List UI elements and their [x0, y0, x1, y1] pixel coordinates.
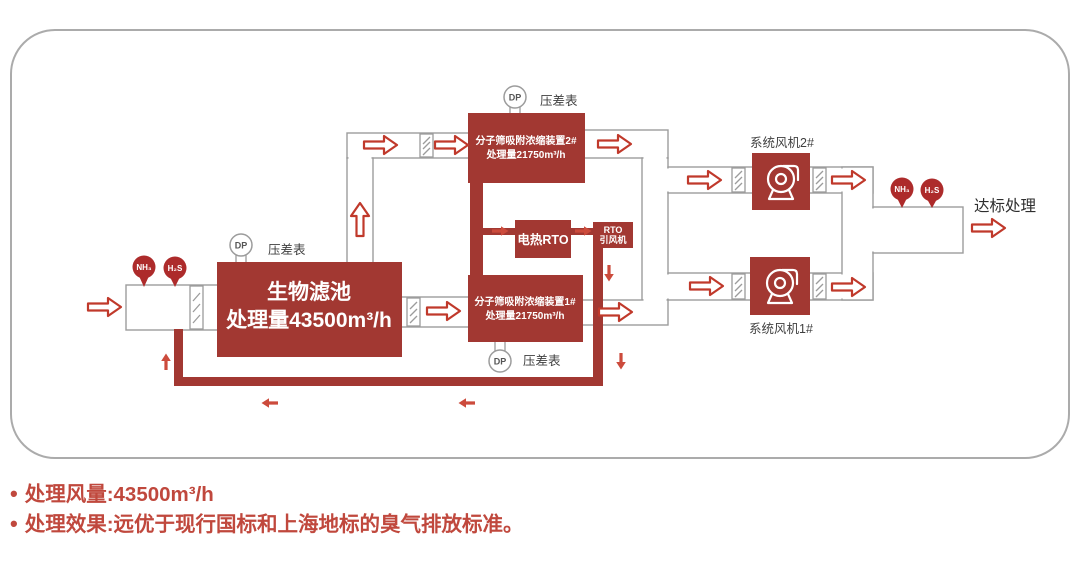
duct-merge-channel: [842, 167, 873, 300]
system-fan2-label: 系统风机2#: [750, 136, 814, 150]
odor-treatment-flow-diagram: DP DP DP: [0, 0, 1078, 470]
gauge1-label: 压差表: [268, 243, 306, 257]
gauge3-label: 压差表: [523, 354, 561, 368]
duct-distribution-channel: [642, 158, 668, 300]
flex-connector: [732, 274, 745, 299]
dp-gauge-abbr: DP: [235, 241, 248, 251]
flex-connector: [190, 286, 203, 329]
nh3-badge-label: NH₃: [136, 263, 152, 272]
rto-fan-name-line2: 引风机: [599, 234, 626, 245]
bullet-airflow: • 处理风量:43500m³/h: [10, 479, 524, 509]
dp-gauge-abbr: DP: [494, 357, 507, 367]
system-fan1-label: 系统风机1#: [749, 322, 813, 336]
summary-bullets: • 处理风量:43500m³/h • 处理效果:远优于现行国标和上海地标的臭气排…: [10, 479, 524, 539]
adsorber2-box: [468, 113, 585, 183]
flex-connector: [813, 274, 826, 299]
gauge2-label: 压差表: [540, 94, 578, 108]
h2s-badge-label: H₂S: [168, 264, 183, 273]
nh3-badge-label: NH₃: [894, 185, 910, 194]
duct-final: [873, 207, 963, 253]
bullet-dot: •: [10, 479, 18, 508]
bullet-effect: • 处理效果:远优于现行国标和上海地标的臭气排放标准。: [10, 509, 524, 539]
adsorber2-name: 分子筛吸附浓缩装置2#: [475, 134, 577, 147]
bullet-dot: •: [10, 509, 18, 538]
duct-inlet: [126, 285, 218, 330]
adsorber1-box: [468, 275, 583, 342]
h2s-badge-label: H₂S: [925, 186, 940, 195]
flex-connector: [732, 168, 745, 192]
biofilter-name: 生物滤池: [267, 280, 351, 304]
adsorber1-name: 分子筛吸附浓缩装置1#: [474, 295, 576, 308]
system-fan2-box: [752, 153, 810, 210]
bullet-airflow-text: 处理风量:43500m³/h: [25, 480, 214, 509]
outlet-label: 达标处理: [974, 197, 1036, 215]
adsorber2-capacity: 处理量21750m³/h: [486, 148, 566, 161]
adsorber1-capacity: 处理量21750m³/h: [485, 309, 565, 322]
dp-gauge-abbr: DP: [509, 93, 522, 103]
rto-name: 电热RTO: [517, 232, 568, 247]
flex-connector: [813, 168, 826, 192]
biofilter-capacity: 处理量43500m³/h: [225, 309, 392, 332]
rto-fan-name-line1: RTO: [604, 225, 623, 235]
pipe-return-riser: [174, 329, 183, 386]
system-fan1-box: [750, 257, 810, 315]
pipe-return-bottom: [174, 377, 603, 386]
bullet-effect-text: 处理效果:远优于现行国标和上海地标的臭气排放标准。: [25, 510, 524, 539]
flex-connector: [420, 134, 433, 157]
pipe-adsorber-link: [470, 181, 483, 277]
flex-connector: [407, 298, 420, 326]
process-flow-screenshot: DP DP DP: [0, 0, 1078, 564]
